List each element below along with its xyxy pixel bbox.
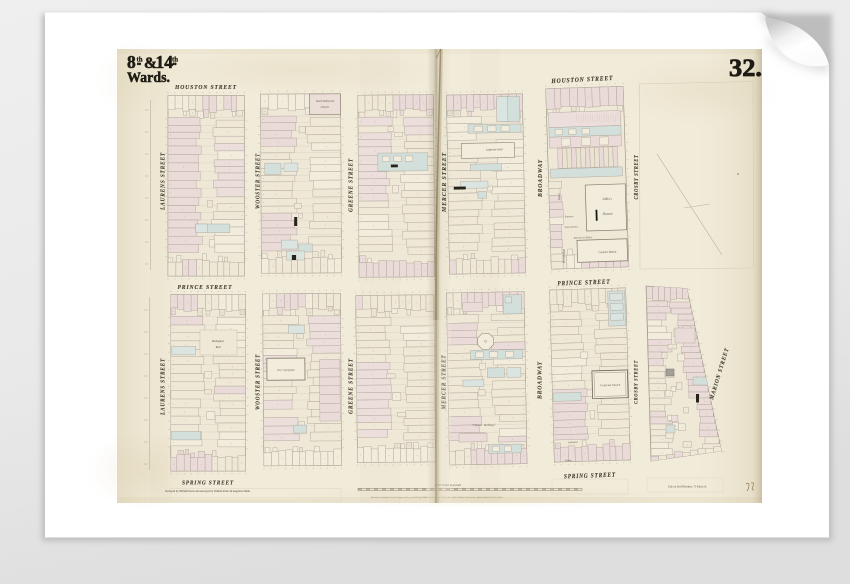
svg-text:th: th	[137, 57, 143, 64]
svg-text:SPRING STREET: SPRING STREET	[182, 480, 234, 487]
svg-text:Wards.: Wards.	[127, 70, 170, 86]
svg-text:Church.: Church.	[321, 106, 330, 109]
svg-text:HOUSTON STREET: HOUSTON STREET	[174, 84, 237, 91]
svg-text:Metropolitan: Metropolitan	[562, 249, 565, 265]
svg-text:WOOSTER STREET: WOOSTER STREET	[256, 354, 262, 410]
svg-text:WOOSTER STREET: WOOSTER STREET	[255, 153, 262, 209]
svg-text:8: 8	[127, 52, 136, 72]
svg-text:Yard: Yard	[215, 346, 221, 349]
svg-text:Lafayette Hall: Lafayette Hall	[485, 147, 503, 151]
svg-text:Lith. by Korff Brothers, 75 Fu: Lith. by Korff Brothers, 75 Fulton St.	[668, 486, 707, 489]
svg-text:Niblo's: Niblo's	[601, 197, 612, 201]
svg-text:Lattimore: Lattimore	[567, 441, 579, 444]
svg-text:House: House	[564, 459, 572, 462]
svg-text:BROADWAY: BROADWAY	[537, 361, 544, 400]
svg-text:Mahogany: Mahogany	[211, 340, 225, 343]
svg-text:GREENE STREET: GREENE STREET	[348, 158, 355, 212]
svg-text:Theatre: Theatre	[603, 212, 614, 216]
svg-text:BROADWAY: BROADWAY	[537, 159, 544, 198]
svg-text:LAURENS STREET: LAURENS STREET	[161, 358, 167, 416]
svg-text:Hotel: Hotel	[557, 193, 561, 201]
svg-text:14: 14	[156, 52, 174, 72]
svg-text:“Chinese ⋅ Buildings”: “Chinese ⋅ Buildings”	[472, 424, 497, 427]
svg-text:Dutch Reformed: Dutch Reformed	[315, 100, 335, 103]
svg-text:Stage Entrance: Stage Entrance	[564, 225, 578, 228]
svg-text:Jews’ Synagogue: Jews’ Synagogue	[277, 369, 296, 372]
svg-text:PRINCE STREET: PRINCE STREET	[178, 284, 233, 291]
svg-text:32.: 32.	[729, 53, 762, 82]
svg-text:Concert Room: Concert Room	[598, 250, 617, 255]
svg-text:Surveyed by William Perris and: Surveyed by William Perris and surveyed …	[165, 490, 251, 493]
svg-text:Unitarian Church: Unitarian Church	[600, 384, 621, 388]
svg-text:GREENE STREET: GREENE STREET	[349, 358, 355, 414]
svg-text:CROSBY STREET: CROSBY STREET	[633, 155, 640, 200]
svg-text:LAURENS STREET: LAURENS STREET	[160, 152, 167, 211]
svg-text:th: th	[172, 57, 178, 64]
svg-text:Entrance to Niblo’s: Entrance to Niblo’s	[573, 236, 593, 240]
svg-text:CROSBY STREET: CROSBY STREET	[634, 360, 640, 404]
svg-text:Entrance: Entrance	[564, 215, 574, 218]
